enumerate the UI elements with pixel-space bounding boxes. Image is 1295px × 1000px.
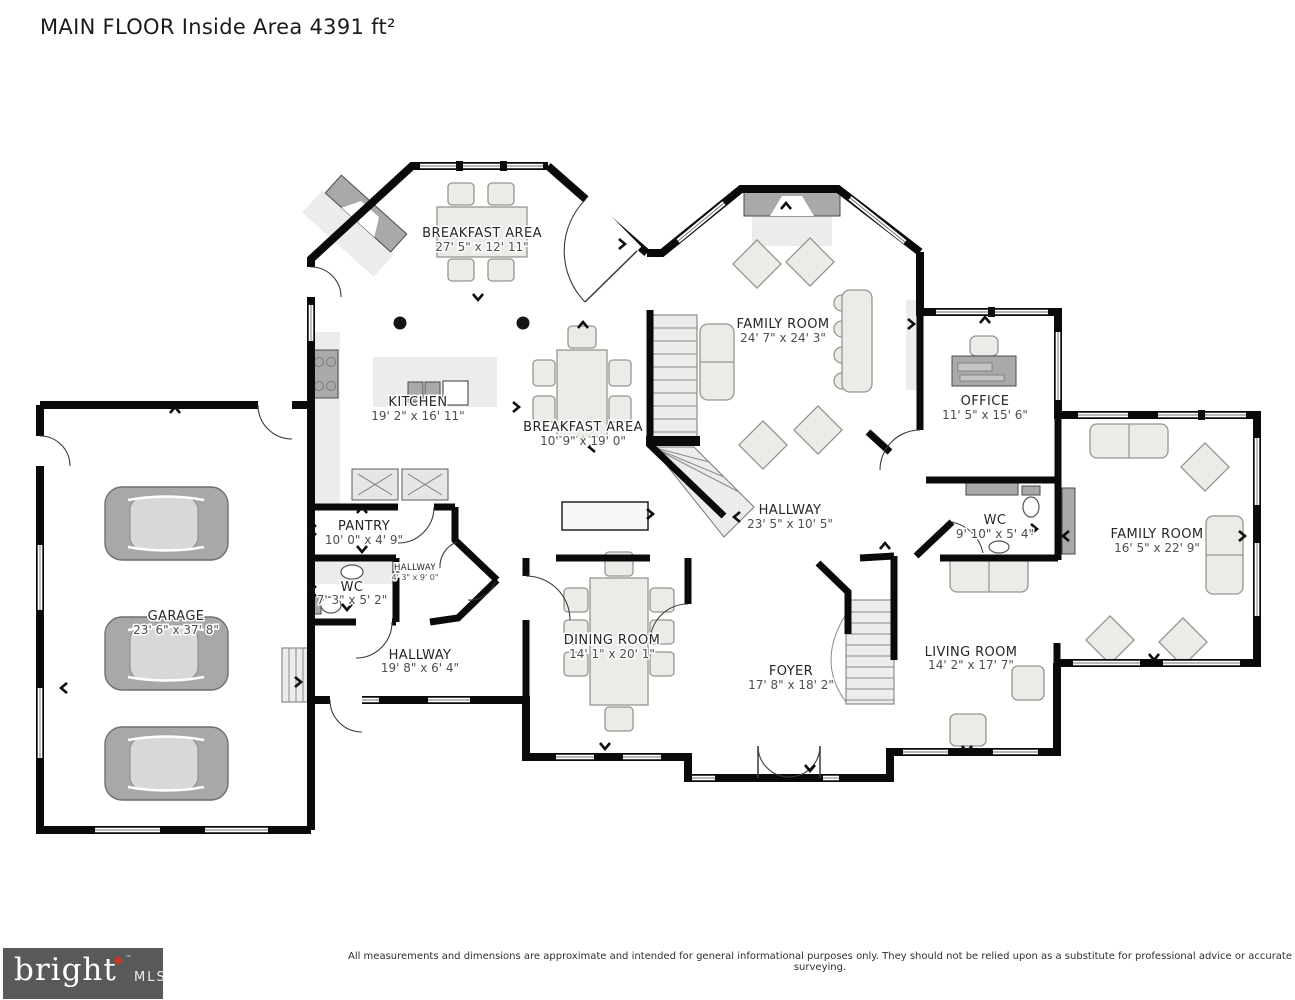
svg-text:WC: WC (984, 513, 1007, 528)
trademark-symbol: ™ (125, 954, 132, 962)
svg-text:14' 2" x 17' 7": 14' 2" x 17' 7" (928, 658, 1014, 672)
room-label-pantry: PANTRY 10' 0" x 4' 9" (325, 519, 403, 547)
svg-text:17' 8" x 18' 2": 17' 8" x 18' 2" (748, 678, 834, 692)
armchair (1086, 616, 1134, 664)
svg-text:PANTRY: PANTRY (338, 519, 390, 534)
svg-text:23' 5" x 10' 5": 23' 5" x 10' 5" (747, 517, 833, 531)
bright-mls-logo: bright ™ MLS (3, 948, 163, 999)
svg-text:10' 0" x 4' 9": 10' 0" x 4' 9" (325, 533, 403, 547)
armchair (1012, 666, 1044, 700)
armchair (950, 714, 986, 746)
room-label-foyer: FOYER 17' 8" x 18' 2" (748, 664, 834, 692)
sink (341, 565, 363, 579)
svg-text:10' 9" x 19' 0": 10' 9" x 19' 0" (540, 434, 626, 448)
room-label-family-room-right: FAMILY ROOM 16' 5" x 22' 9" (1111, 527, 1204, 555)
room-label-office: OFFICE 11' 5" x 15' 6" (942, 394, 1028, 422)
disclaimer-text: All measurements and dimensions are appr… (345, 951, 1295, 973)
sink (989, 541, 1009, 553)
room-label-breakfast-area: BREAKFAST AREA 10' 9" x 19' 0" (523, 420, 643, 448)
svg-text:FAMILY ROOM: FAMILY ROOM (737, 317, 830, 332)
brand-name: bright (14, 952, 117, 988)
svg-text:16' 5" x 22' 9": 16' 5" x 22' 9" (1114, 541, 1200, 555)
shower (966, 482, 1018, 495)
svg-text:24' 7" x 24' 3": 24' 7" x 24' 3" (740, 331, 826, 345)
sectional-sofa (834, 290, 872, 392)
armchair (733, 240, 781, 288)
svg-text:11' 5" x 15' 6": 11' 5" x 15' 6" (942, 408, 1028, 422)
car (105, 487, 228, 560)
svg-text:BREAKFAST AREA: BREAKFAST AREA (422, 226, 542, 241)
svg-text:FOYER: FOYER (769, 664, 813, 679)
room-label-wc-left: WC 7' 3" x 5' 2" (317, 580, 388, 607)
armchair (794, 406, 842, 454)
foyer-staircase (831, 600, 894, 704)
svg-text:9' 10" x 5' 4": 9' 10" x 5' 4" (956, 527, 1034, 541)
armchair (1159, 618, 1207, 666)
room-label-breakfast-bay: BREAKFAST AREA 27' 5" x 12' 11" (422, 226, 542, 254)
svg-text:DINING ROOM: DINING ROOM (564, 633, 660, 648)
svg-text:HALLWAY: HALLWAY (394, 563, 436, 573)
office-desk (952, 336, 1016, 386)
toilet (1022, 486, 1040, 517)
svg-text:14' 1" x 20' 1": 14' 1" x 20' 1" (569, 647, 655, 661)
room-label-hallway-main: HALLWAY 23' 5" x 10' 5" (747, 503, 833, 531)
furniture-layer (105, 173, 1243, 800)
armchair (1181, 443, 1229, 491)
svg-text:HALLWAY: HALLWAY (759, 503, 822, 518)
ceiling-light (394, 317, 407, 330)
stove (312, 350, 338, 398)
svg-text:KITCHEN: KITCHEN (388, 395, 447, 410)
floor-plan-drawing: BREAKFAST AREA 27' 5" x 12' 11" KITCHEN … (0, 0, 1295, 1000)
room-label-hallway-west: HALLWAY 19' 8" x 6' 4" (381, 648, 459, 675)
console-table (562, 502, 648, 530)
brand-sub-name: MLS (134, 970, 167, 985)
room-label-family-room: FAMILY ROOM 24' 7" x 24' 3" (737, 317, 830, 345)
svg-text:19' 2" x 16' 11": 19' 2" x 16' 11" (371, 409, 464, 423)
sofa (1206, 516, 1243, 594)
ceiling-light (517, 317, 530, 330)
armchair (739, 421, 787, 469)
svg-text:27' 5" x 12' 11": 27' 5" x 12' 11" (435, 240, 528, 254)
room-label-hallway-small: HALLWAY 4' 3" x 9' 0" (391, 563, 438, 582)
floor-plan-page: MAIN FLOOR Inside Area 4391 ft² (0, 0, 1295, 1000)
svg-text:19' 8" x 6' 4": 19' 8" x 6' 4" (381, 661, 459, 675)
room-label-dining-room: DINING ROOM 14' 1" x 20' 1" (564, 633, 660, 661)
svg-text:7' 3" x 5' 2": 7' 3" x 5' 2" (317, 593, 388, 607)
svg-text:4' 3" x 9' 0": 4' 3" x 9' 0" (391, 573, 438, 582)
car (105, 727, 228, 800)
tv (1062, 488, 1075, 554)
room-label-wc-right: WC 9' 10" x 5' 4" (956, 513, 1034, 541)
sofa (1090, 424, 1168, 458)
room-label-living-room: LIVING ROOM 14' 2" x 17' 7" (925, 645, 1018, 672)
svg-text:OFFICE: OFFICE (961, 394, 1010, 409)
svg-text:23' 6" x 37' 8": 23' 6" x 37' 8" (133, 623, 219, 637)
room-label-garage: GARAGE 23' 6" x 37' 8" (133, 609, 219, 637)
family-room-fireplace (744, 189, 840, 246)
svg-text:GARAGE: GARAGE (148, 609, 205, 624)
svg-text:FAMILY ROOM: FAMILY ROOM (1111, 527, 1204, 542)
svg-text:BREAKFAST AREA: BREAKFAST AREA (523, 420, 643, 435)
door-direction-arrows (61, 203, 1245, 771)
